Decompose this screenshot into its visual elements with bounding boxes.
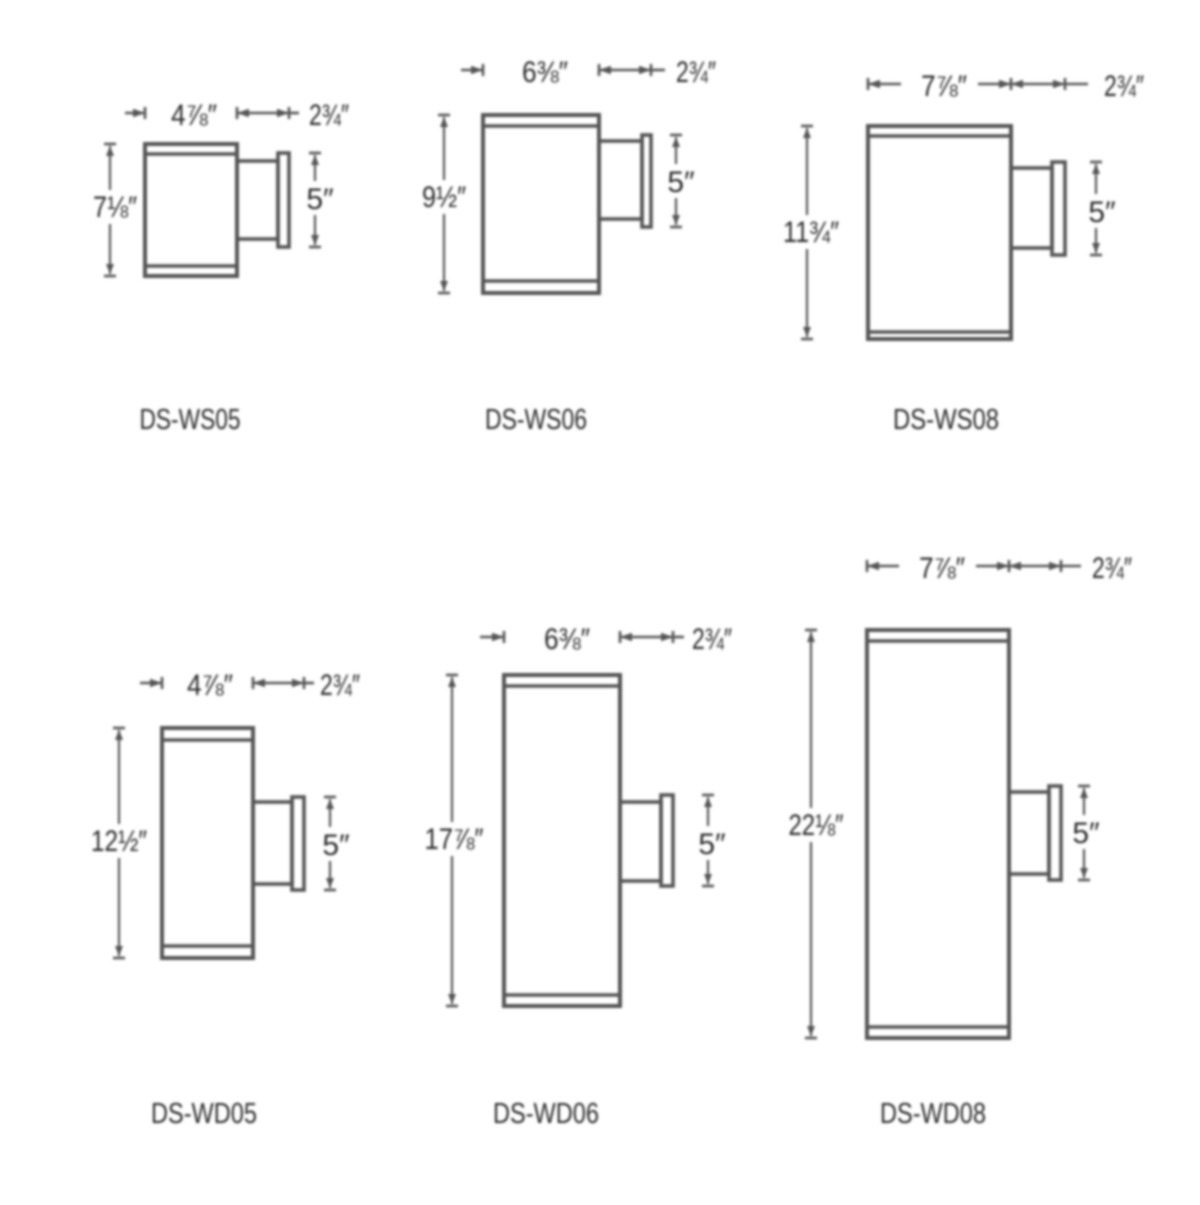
svg-text:6⅜″: 6⅜″: [522, 56, 568, 89]
svg-text:5″: 5″: [667, 166, 695, 199]
svg-text:2¾″: 2¾″: [1092, 552, 1132, 585]
svg-text:2¾″: 2¾″: [309, 99, 349, 132]
svg-text:DS-WS05: DS-WS05: [140, 404, 241, 436]
svg-text:22⅛″: 22⅛″: [789, 809, 844, 842]
svg-text:7⅞″: 7⅞″: [919, 552, 965, 585]
svg-text:5″: 5″: [1072, 817, 1100, 850]
svg-text:2¾″: 2¾″: [676, 56, 716, 89]
svg-text:DS-WD06: DS-WD06: [493, 1098, 599, 1130]
svg-text:DS-WS08: DS-WS08: [893, 404, 999, 436]
svg-text:4⅞″: 4⅞″: [171, 99, 217, 132]
svg-text:11¾″: 11¾″: [783, 216, 839, 249]
svg-text:7⅛″: 7⅛″: [93, 191, 137, 224]
svg-text:DS-WD08: DS-WD08: [880, 1098, 986, 1130]
svg-text:5″: 5″: [698, 828, 726, 861]
svg-text:DS-WD05: DS-WD05: [151, 1098, 257, 1130]
svg-text:17⅞″: 17⅞″: [425, 823, 484, 856]
svg-text:5″: 5″: [1088, 196, 1116, 229]
svg-text:7⅞″: 7⅞″: [921, 70, 967, 103]
svg-text:2¾″: 2¾″: [692, 623, 732, 656]
svg-text:5″: 5″: [306, 183, 334, 216]
svg-text:9½″: 9½″: [422, 181, 466, 214]
svg-text:12½″: 12½″: [91, 825, 147, 858]
svg-text:5″: 5″: [322, 829, 350, 862]
svg-text:4⅞″: 4⅞″: [187, 669, 233, 702]
svg-text:DS-WS06: DS-WS06: [485, 404, 587, 436]
svg-text:2¾″: 2¾″: [1104, 70, 1144, 103]
svg-text:2¾″: 2¾″: [320, 669, 360, 702]
svg-text:6⅜″: 6⅜″: [544, 623, 590, 656]
